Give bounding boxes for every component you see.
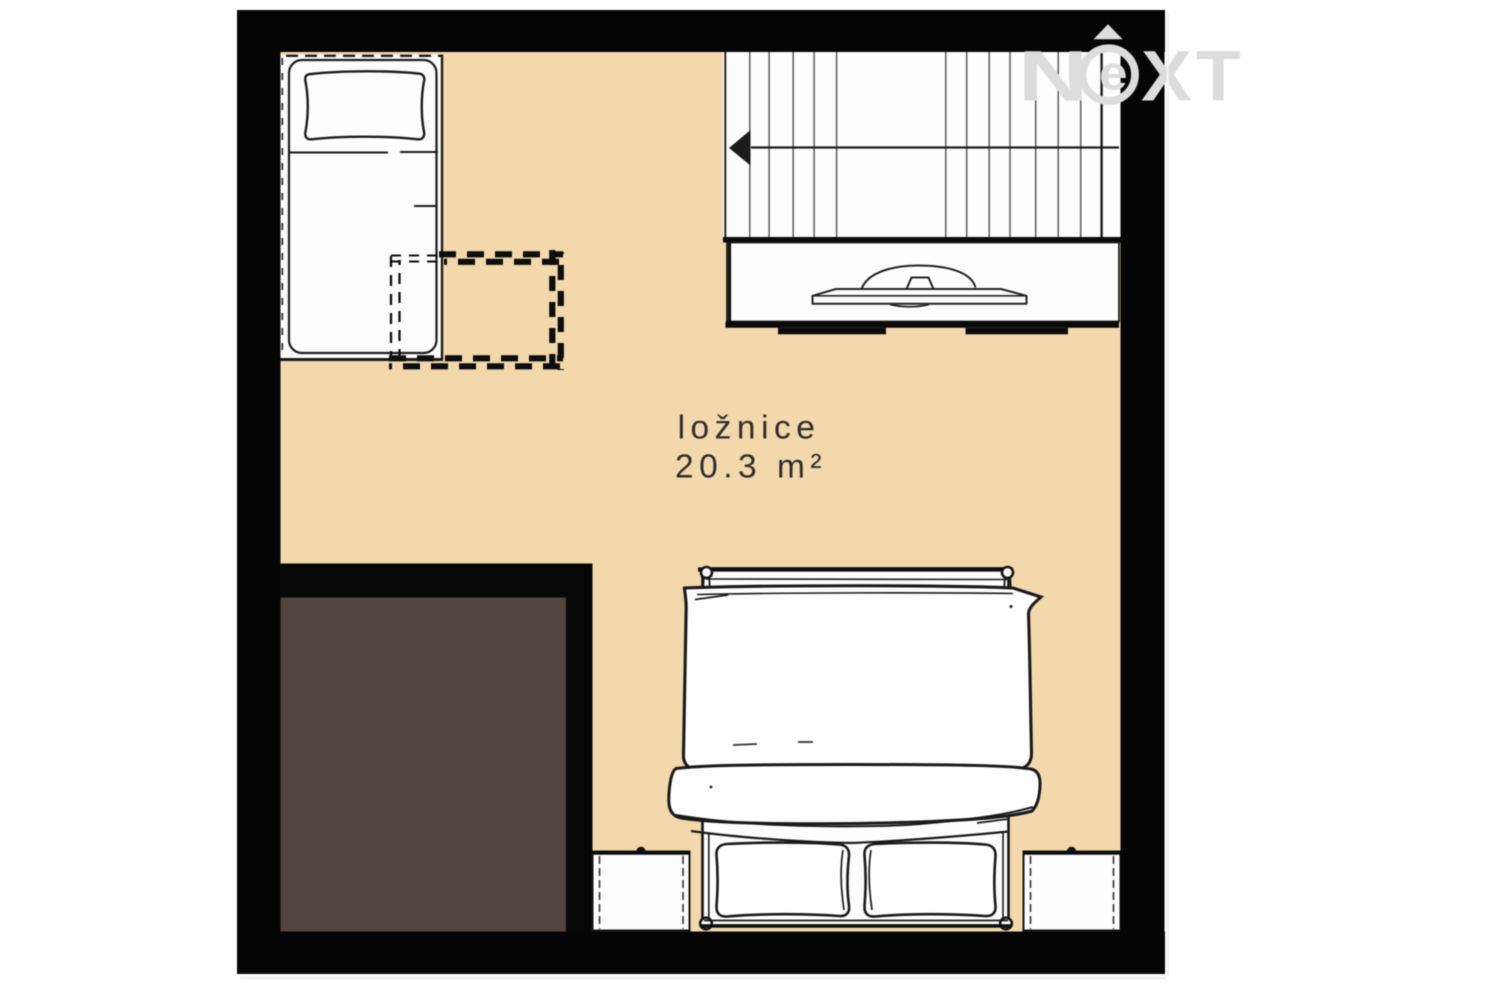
- svg-text:N: N: [1018, 36, 1088, 116]
- svg-text:20.3 m²: 20.3 m²: [675, 449, 827, 486]
- svg-text:e: e: [1099, 48, 1128, 101]
- svg-text:T: T: [1196, 36, 1241, 116]
- svg-text:ložnice: ložnice: [678, 410, 821, 447]
